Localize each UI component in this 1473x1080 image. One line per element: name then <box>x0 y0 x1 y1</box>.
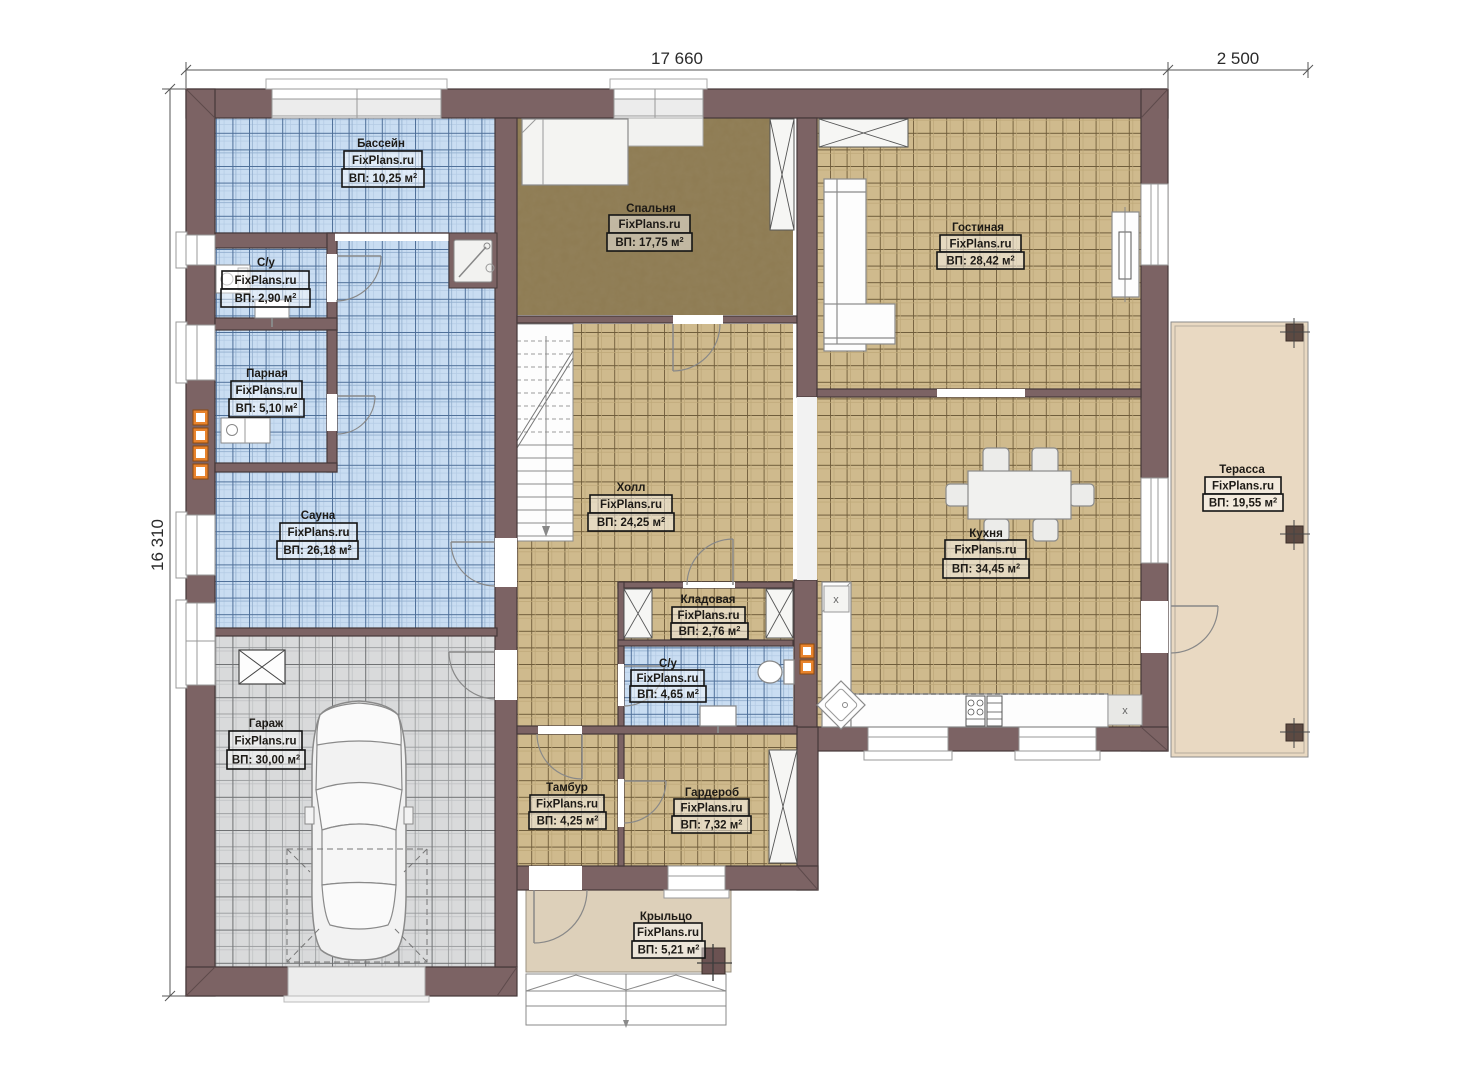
svg-text:ВП: 2,76 м2: ВП: 2,76 м2 <box>679 624 741 638</box>
svg-text:FixPlans.ru: FixPlans.ru <box>288 527 350 539</box>
svg-text:FixPlans.ru: FixPlans.ru <box>536 799 598 811</box>
svg-text:FixPlans.ru: FixPlans.ru <box>681 803 743 815</box>
svg-text:ВП: 2,90 м2: ВП: 2,90 м2 <box>235 291 297 305</box>
svg-text:FixPlans.ru: FixPlans.ru <box>637 927 699 939</box>
svg-text:ВП: 5,21 м2: ВП: 5,21 м2 <box>638 943 700 957</box>
svg-text:FixPlans.ru: FixPlans.ru <box>235 275 297 287</box>
svg-text:FixPlans.ru: FixPlans.ru <box>352 155 414 167</box>
svg-text:16 310: 16 310 <box>148 519 167 571</box>
svg-text:ВП: 5,10 м2: ВП: 5,10 м2 <box>236 401 298 415</box>
svg-text:ВП: 28,42 м2: ВП: 28,42 м2 <box>946 254 1014 268</box>
svg-text:Тамбур: Тамбур <box>546 782 588 794</box>
svg-text:ВП: 24,25 м2: ВП: 24,25 м2 <box>597 515 665 529</box>
svg-text:Парная: Парная <box>246 368 288 380</box>
svg-text:Кладовая: Кладовая <box>680 594 735 606</box>
svg-text:ВП: 19,55 м2: ВП: 19,55 м2 <box>1209 496 1277 510</box>
svg-text:ВП: 17,75 м2: ВП: 17,75 м2 <box>615 235 683 249</box>
svg-text:FixPlans.ru: FixPlans.ru <box>600 499 662 511</box>
svg-text:FixPlans.ru: FixPlans.ru <box>236 385 298 397</box>
svg-text:FixPlans.ru: FixPlans.ru <box>637 673 699 685</box>
svg-text:2 500: 2 500 <box>1217 49 1260 68</box>
svg-text:x: x <box>1122 705 1128 717</box>
svg-text:Спальня: Спальня <box>626 203 676 215</box>
svg-text:Терасса: Терасса <box>1219 464 1265 476</box>
svg-text:x: x <box>833 594 839 606</box>
svg-text:ВП: 34,45 м2: ВП: 34,45 м2 <box>952 562 1020 576</box>
svg-text:С/у: С/у <box>659 658 678 670</box>
svg-text:Бассейн: Бассейн <box>357 138 405 150</box>
svg-text:ВП: 30,00 м2: ВП: 30,00 м2 <box>232 753 300 767</box>
svg-text:FixPlans.ru: FixPlans.ru <box>1212 481 1274 493</box>
svg-text:Сауна: Сауна <box>301 510 336 522</box>
svg-text:FixPlans.ru: FixPlans.ru <box>678 610 740 622</box>
svg-text:FixPlans.ru: FixPlans.ru <box>950 239 1012 251</box>
svg-text:ВП: 7,32 м2: ВП: 7,32 м2 <box>681 818 743 832</box>
svg-text:Крыльцо: Крыльцо <box>640 911 692 923</box>
svg-text:С/у: С/у <box>257 257 276 269</box>
svg-text:FixPlans.ru: FixPlans.ru <box>235 736 297 748</box>
svg-text:Гостиная: Гостиная <box>952 222 1004 234</box>
svg-text:ВП: 4,65 м2: ВП: 4,65 м2 <box>637 687 699 701</box>
svg-text:ВП: 26,18 м2: ВП: 26,18 м2 <box>283 543 351 557</box>
svg-text:Гардероб: Гардероб <box>685 787 739 799</box>
svg-text:17 660: 17 660 <box>651 49 703 68</box>
svg-text:Гараж: Гараж <box>249 718 284 730</box>
svg-text:ВП: 4,25 м2: ВП: 4,25 м2 <box>537 814 599 828</box>
svg-text:Кухня: Кухня <box>969 528 1003 540</box>
svg-text:Холл: Холл <box>617 482 646 494</box>
svg-text:ВП: 10,25 м2: ВП: 10,25 м2 <box>349 171 417 185</box>
svg-text:FixPlans.ru: FixPlans.ru <box>955 545 1017 557</box>
svg-text:FixPlans.ru: FixPlans.ru <box>619 219 681 231</box>
